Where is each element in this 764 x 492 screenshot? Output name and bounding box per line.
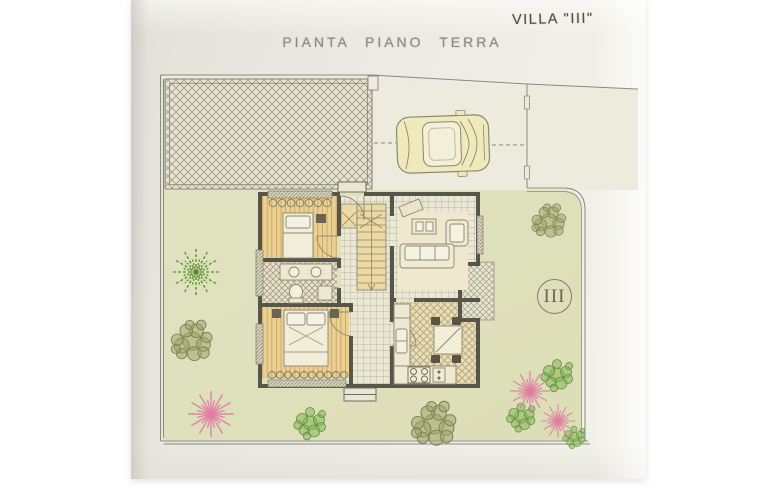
page-root: { "header": { "villa_label": "VILLA \"II…	[0, 0, 764, 492]
window-icon	[256, 250, 263, 296]
cabinet-icon	[412, 219, 436, 234]
sink-icon	[280, 264, 332, 280]
living-furniture	[398, 199, 468, 290]
house	[256, 182, 483, 401]
window-icon	[268, 191, 332, 198]
stove-icon	[408, 367, 430, 383]
window-icon	[256, 324, 263, 364]
unit-badge: III	[537, 279, 572, 314]
terrace	[165, 76, 378, 189]
page-title: PIANTA PIANO TERRA	[270, 34, 514, 50]
kitchen-sink-icon	[396, 329, 407, 353]
villa-label: VILLA "III"	[512, 10, 642, 28]
armchair-icon	[446, 220, 468, 246]
sofa-icon	[400, 244, 454, 268]
window-icon	[477, 216, 483, 254]
floor-plan-drawing	[0, 0, 764, 492]
bidet-icon	[318, 286, 332, 300]
car-icon	[396, 109, 490, 178]
window-icon	[268, 380, 346, 387]
toilet-icon	[289, 285, 303, 304]
